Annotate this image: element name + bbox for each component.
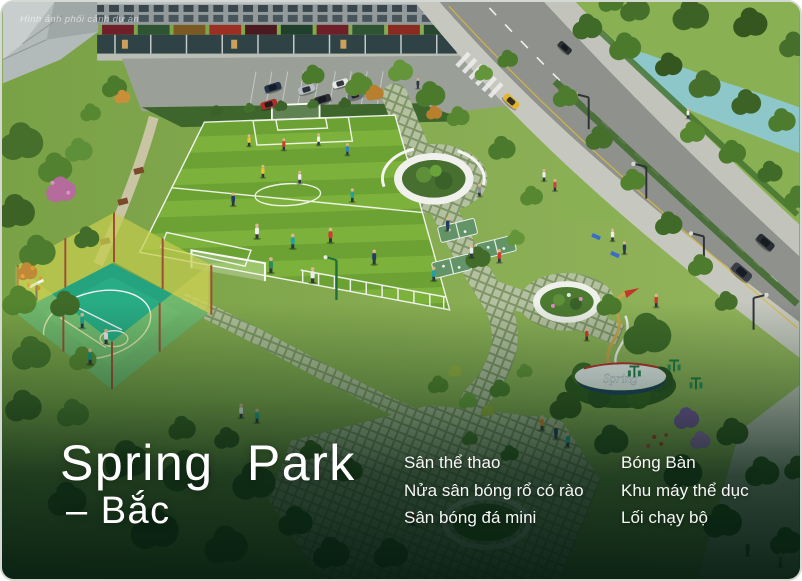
spring-sign-label: Spring: [603, 370, 638, 385]
shophouse-row: [97, 2, 464, 61]
circular-planter-2: [533, 281, 601, 323]
amenity-item: Bóng Bàn: [621, 449, 749, 477]
title-line-1: Spring Park: [60, 438, 356, 489]
amenity-item: Khu máy thể dục: [621, 477, 749, 505]
amenity-item: Nửa sân bóng rổ có rào: [404, 477, 584, 505]
title-line-2: – Bắc: [66, 492, 356, 531]
amenity-list-left: Sân thể thao Nửa sân bóng rổ có rào Sân …: [404, 449, 584, 532]
amenity-item: Sân bóng đá mini: [404, 504, 584, 532]
page-title: Spring Park – Bắc: [60, 438, 356, 531]
amenity-item: Lối chạy bộ: [621, 504, 749, 532]
amenity-item: Sân thể thao: [404, 449, 584, 477]
watermark: Hình ảnh phối cảnh dự án: [20, 14, 139, 25]
spring-park-render-card: Spring: [0, 0, 802, 581]
amenity-list-right: Bóng Bàn Khu máy thể dục Lối chạy bộ: [621, 449, 749, 532]
